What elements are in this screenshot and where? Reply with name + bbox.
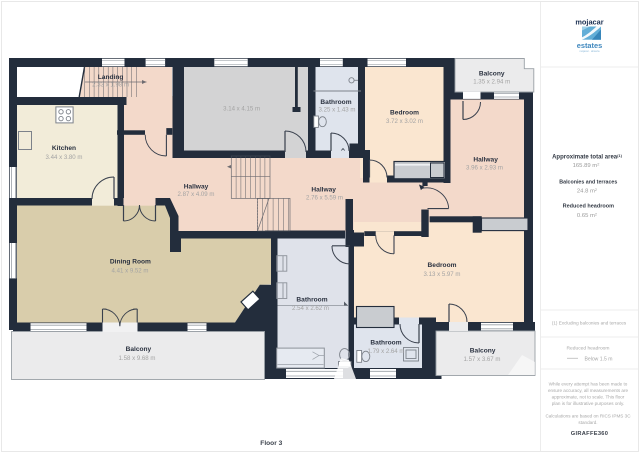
svg-text:2.76 x 5.59 m: 2.76 x 5.59 m	[306, 195, 343, 202]
svg-text:Hallway: Hallway	[311, 186, 336, 193]
svg-text:plan is for illustrative purpo: plan is for illustrative purposes only.	[552, 401, 624, 406]
svg-text:Bathroom: Bathroom	[370, 339, 401, 346]
svg-text:Landing: Landing	[98, 74, 124, 81]
svg-text:3.96 x 2.93 m: 3.96 x 2.93 m	[466, 165, 503, 172]
svg-text:estates: estates	[577, 41, 602, 50]
svg-text:Approximate total area(1): Approximate total area(1)	[552, 153, 622, 161]
svg-text:Bedroom: Bedroom	[428, 262, 457, 269]
svg-text:2.33 x 1.98 m: 2.33 x 1.98 m	[92, 82, 129, 89]
svg-text:mojacar · almeria: mojacar · almeria	[579, 49, 600, 53]
svg-text:0.65 m2: 0.65 m2	[577, 211, 597, 219]
svg-text:Balcony: Balcony	[479, 70, 505, 77]
svg-text:ensure accuracy, all measureme: ensure accuracy, all measurements are	[548, 388, 629, 393]
svg-text:4.41 x 9.52 m: 4.41 x 9.52 m	[112, 267, 149, 274]
svg-text:3.72 x 3.02 m: 3.72 x 3.02 m	[386, 118, 423, 125]
svg-text:2.87 x 4.09 m: 2.87 x 4.09 m	[178, 191, 215, 198]
svg-text:Bedroom: Bedroom	[390, 109, 419, 116]
svg-text:Reduced headroom: Reduced headroom	[563, 204, 614, 210]
svg-text:(1) Excluding balconies and te: (1) Excluding balconies and terraces	[552, 320, 627, 325]
svg-text:2.54 x 2.62 m: 2.54 x 2.62 m	[292, 305, 329, 312]
svg-text:Bathroom: Bathroom	[296, 296, 327, 303]
svg-text:Below 1.5 m: Below 1.5 m	[584, 356, 612, 362]
svg-text:standard.: standard.	[578, 420, 597, 425]
svg-text:While every attempt has been m: While every attempt has been made to	[549, 381, 628, 386]
svg-text:Calculations are based on RICS: Calculations are based on RICS IPMS 3C	[545, 413, 631, 418]
svg-text:1.58 x 9.68 m: 1.58 x 9.68 m	[119, 355, 156, 362]
svg-text:Balcony: Balcony	[126, 346, 152, 353]
svg-text:Dining Room: Dining Room	[110, 259, 151, 266]
svg-text:3.14 x 4.15 m: 3.14 x 4.15 m	[223, 106, 260, 113]
svg-text:Balcony: Balcony	[470, 347, 496, 354]
svg-text:1.57 x 3.67 m: 1.57 x 3.67 m	[464, 356, 501, 363]
svg-text:24.8 m2: 24.8 m2	[577, 187, 597, 195]
svg-text:GIRAFFE360: GIRAFFE360	[571, 431, 608, 437]
svg-text:3.13 x 5.97 m: 3.13 x 5.97 m	[424, 271, 461, 278]
svg-text:Hallway: Hallway	[473, 156, 498, 163]
svg-text:Kitchen: Kitchen	[52, 145, 76, 152]
svg-text:Balconies and terraces: Balconies and terraces	[559, 180, 617, 186]
svg-text:Floor 3: Floor 3	[260, 440, 282, 447]
svg-text:Reduced headroom: Reduced headroom	[567, 346, 610, 352]
svg-text:Hallway: Hallway	[184, 184, 209, 191]
svg-text:1.79 x 2.64 m: 1.79 x 2.64 m	[368, 348, 405, 355]
svg-text:approximate, not to scale. Thi: approximate, not to scale. This floor	[552, 394, 625, 399]
svg-text:mojacar: mojacar	[575, 17, 603, 26]
svg-text:Bathroom: Bathroom	[320, 99, 351, 106]
svg-text:3.25 x 1.43 m: 3.25 x 1.43 m	[319, 107, 356, 114]
svg-text:3.44 x 3.80 m: 3.44 x 3.80 m	[46, 154, 83, 161]
svg-text:165.89 m2: 165.89 m2	[573, 161, 600, 169]
svg-text:1.35 x 2.94 m: 1.35 x 2.94 m	[473, 79, 510, 86]
